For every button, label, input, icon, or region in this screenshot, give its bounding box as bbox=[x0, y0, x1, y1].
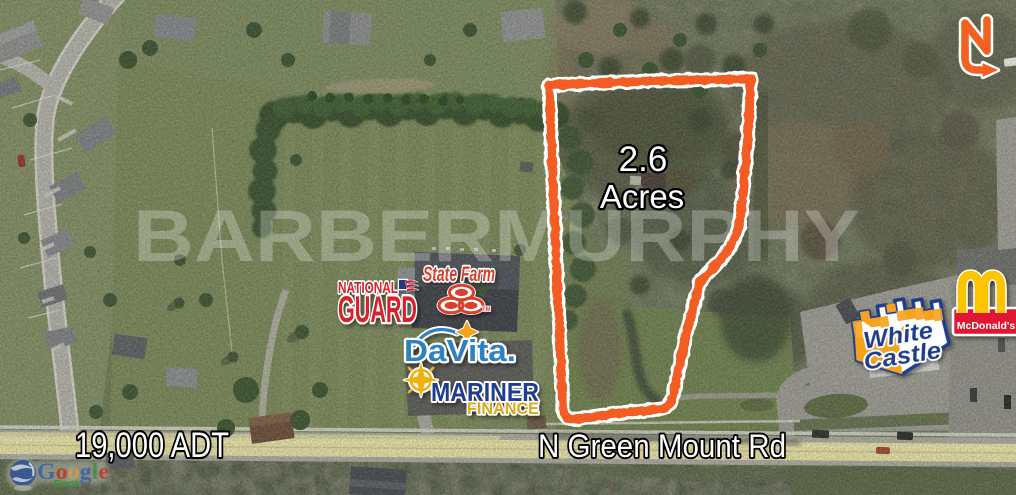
svg-text:GUARD: GUARD bbox=[338, 289, 417, 330]
svg-text:TM: TM bbox=[482, 307, 491, 313]
svg-text:McDonald's: McDonald's bbox=[957, 320, 1016, 332]
svg-text:BARBERMURPHY: BARBERMURPHY bbox=[133, 196, 860, 277]
svg-text:N Green Mount Rd: N Green Mount Rd bbox=[538, 428, 786, 464]
svg-text:Acres: Acres bbox=[600, 178, 684, 215]
svg-text:2.6: 2.6 bbox=[619, 140, 668, 179]
svg-text:FINANCE: FINANCE bbox=[467, 400, 539, 418]
svg-text:Earth: Earth bbox=[54, 478, 81, 490]
svg-text:State Farm: State Farm bbox=[423, 263, 495, 286]
